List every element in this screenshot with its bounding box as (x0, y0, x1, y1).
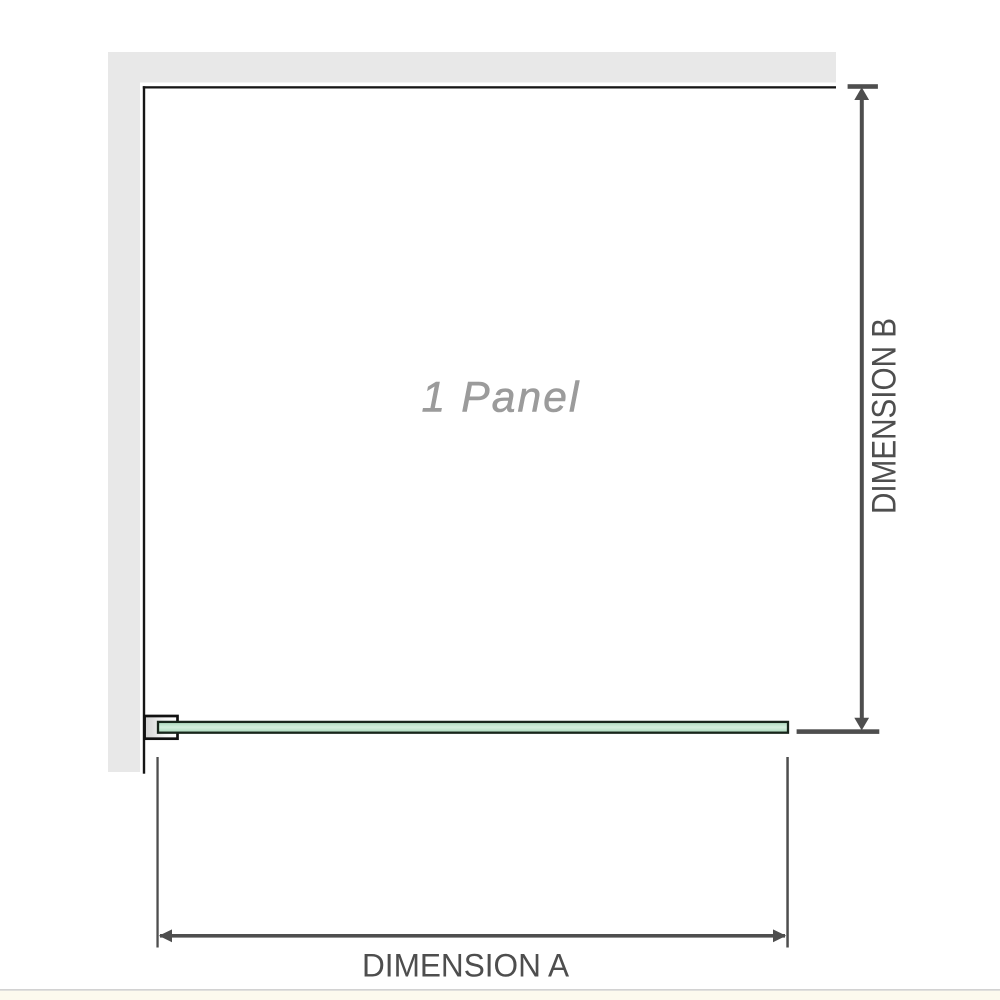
svg-text:1 Panel: 1 Panel (422, 375, 581, 422)
svg-text:DIMENSION B: DIMENSION B (866, 318, 904, 514)
svg-text:DIMENSION A: DIMENSION A (362, 948, 570, 984)
